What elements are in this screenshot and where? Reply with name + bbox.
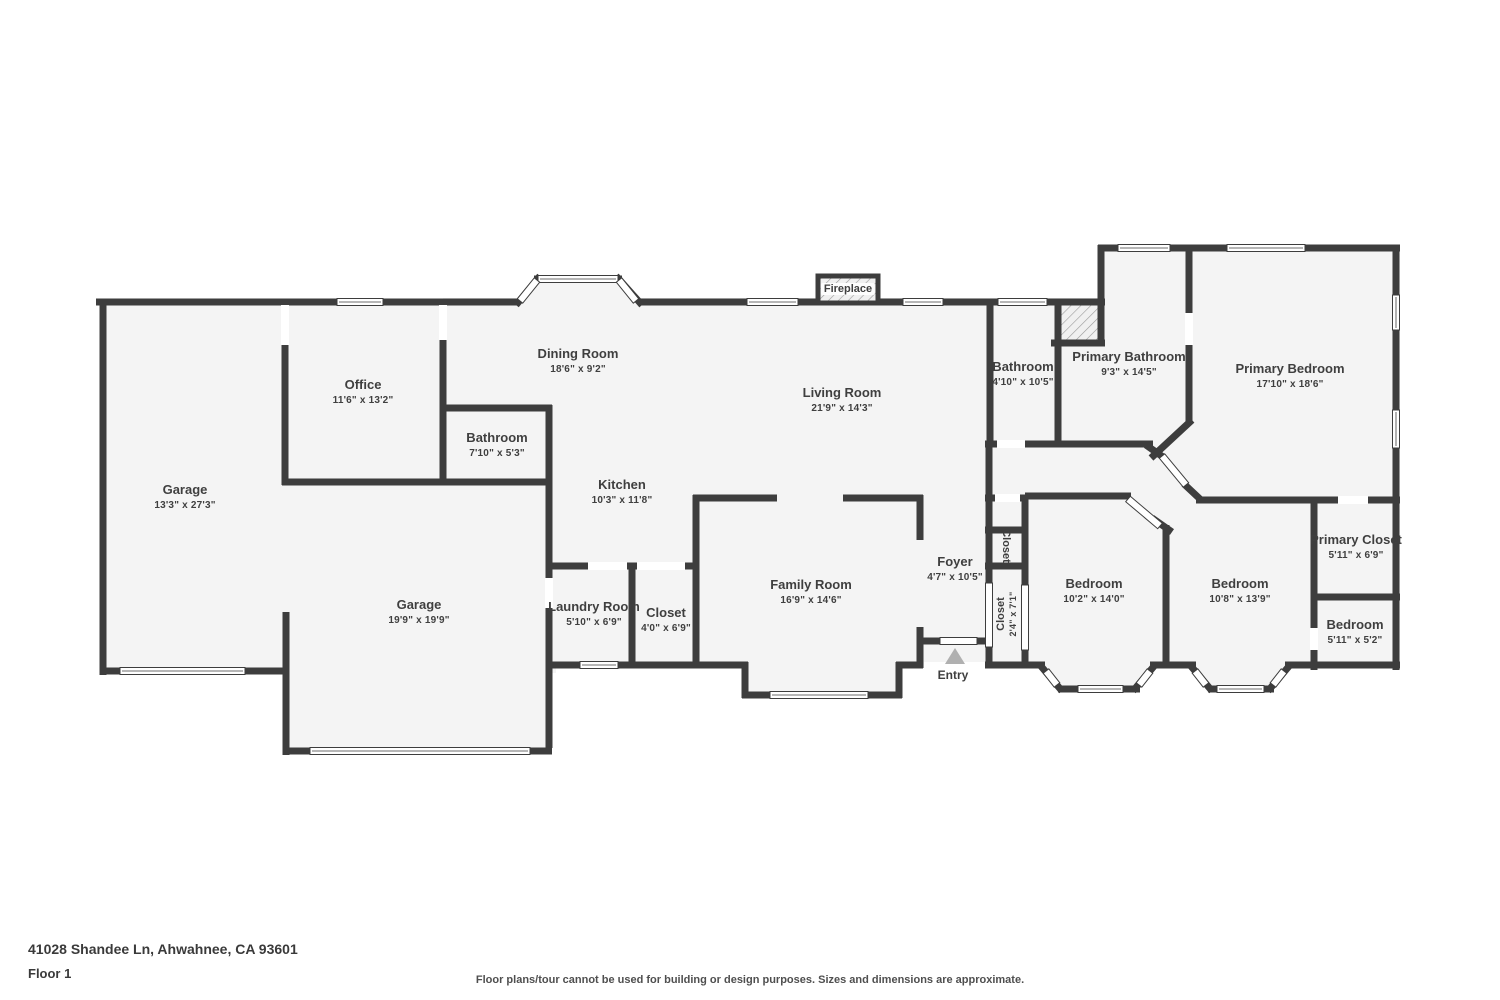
room-label-garage-1: Garage 13'3" x 27'3" [154,482,215,512]
room-label-living-room: Living Room 21'9" x 14'3" [803,385,882,415]
room-label-office: Office 11'6" x 13'2" [333,377,394,407]
room-label-closet-1: Closet 4'0" x 6'9" [641,605,691,635]
floorplan-svg [0,0,1500,1000]
room-label-primary-bathroom: Primary Bathroom 9'3" x 14'5" [1072,349,1185,379]
room-label-laundry-room: Laundry Room 5'10" x 6'9" [548,599,640,629]
room-label-family-room: Family Room 16'9" x 14'6" [770,577,852,607]
floorplan-page: Garage 13'3" x 27'3" Office 11'6" x 13'2… [0,0,1500,1000]
shower-hatch [1055,299,1104,346]
room-label-primary-bedroom: Primary Bedroom 17'10" x 18'6" [1235,361,1344,391]
entry-label: Entry [938,668,969,682]
room-label-bedroom-3: Bedroom 5'11" x 5'2" [1326,617,1383,647]
room-label-closet-2: Closet [999,529,1013,563]
address-text: 41028 Shandee Ln, Ahwahnee, CA 93601 [28,941,298,957]
room-label-primary-closet: Primary Closet 5'11" x 6'9" [1310,532,1402,562]
room-label-garage-2: Garage 19'9" x 19'9" [388,597,449,627]
room-label-bathroom-2: Bathroom 4'10" x 10'5" [992,359,1053,389]
room-label-bedroom-2: Bedroom 10'8" x 13'9" [1209,576,1270,606]
room-label-bathroom-1: Bathroom 7'10" x 5'3" [466,430,527,460]
room-label-closet-3: Closet 2'4" x 7'1" [994,591,1020,636]
room-label-bedroom-1: Bedroom 10'2" x 14'0" [1063,576,1124,606]
disclaimer-text: Floor plans/tour cannot be used for buil… [0,974,1500,986]
room-label-foyer: Foyer 4'7" x 10'5" [927,554,983,584]
room-label-kitchen: Kitchen 10'3" x 11'8" [592,477,653,507]
room-label-dining-room: Dining Room 18'6" x 9'2" [538,346,619,376]
fireplace-label: Fireplace [821,283,875,295]
